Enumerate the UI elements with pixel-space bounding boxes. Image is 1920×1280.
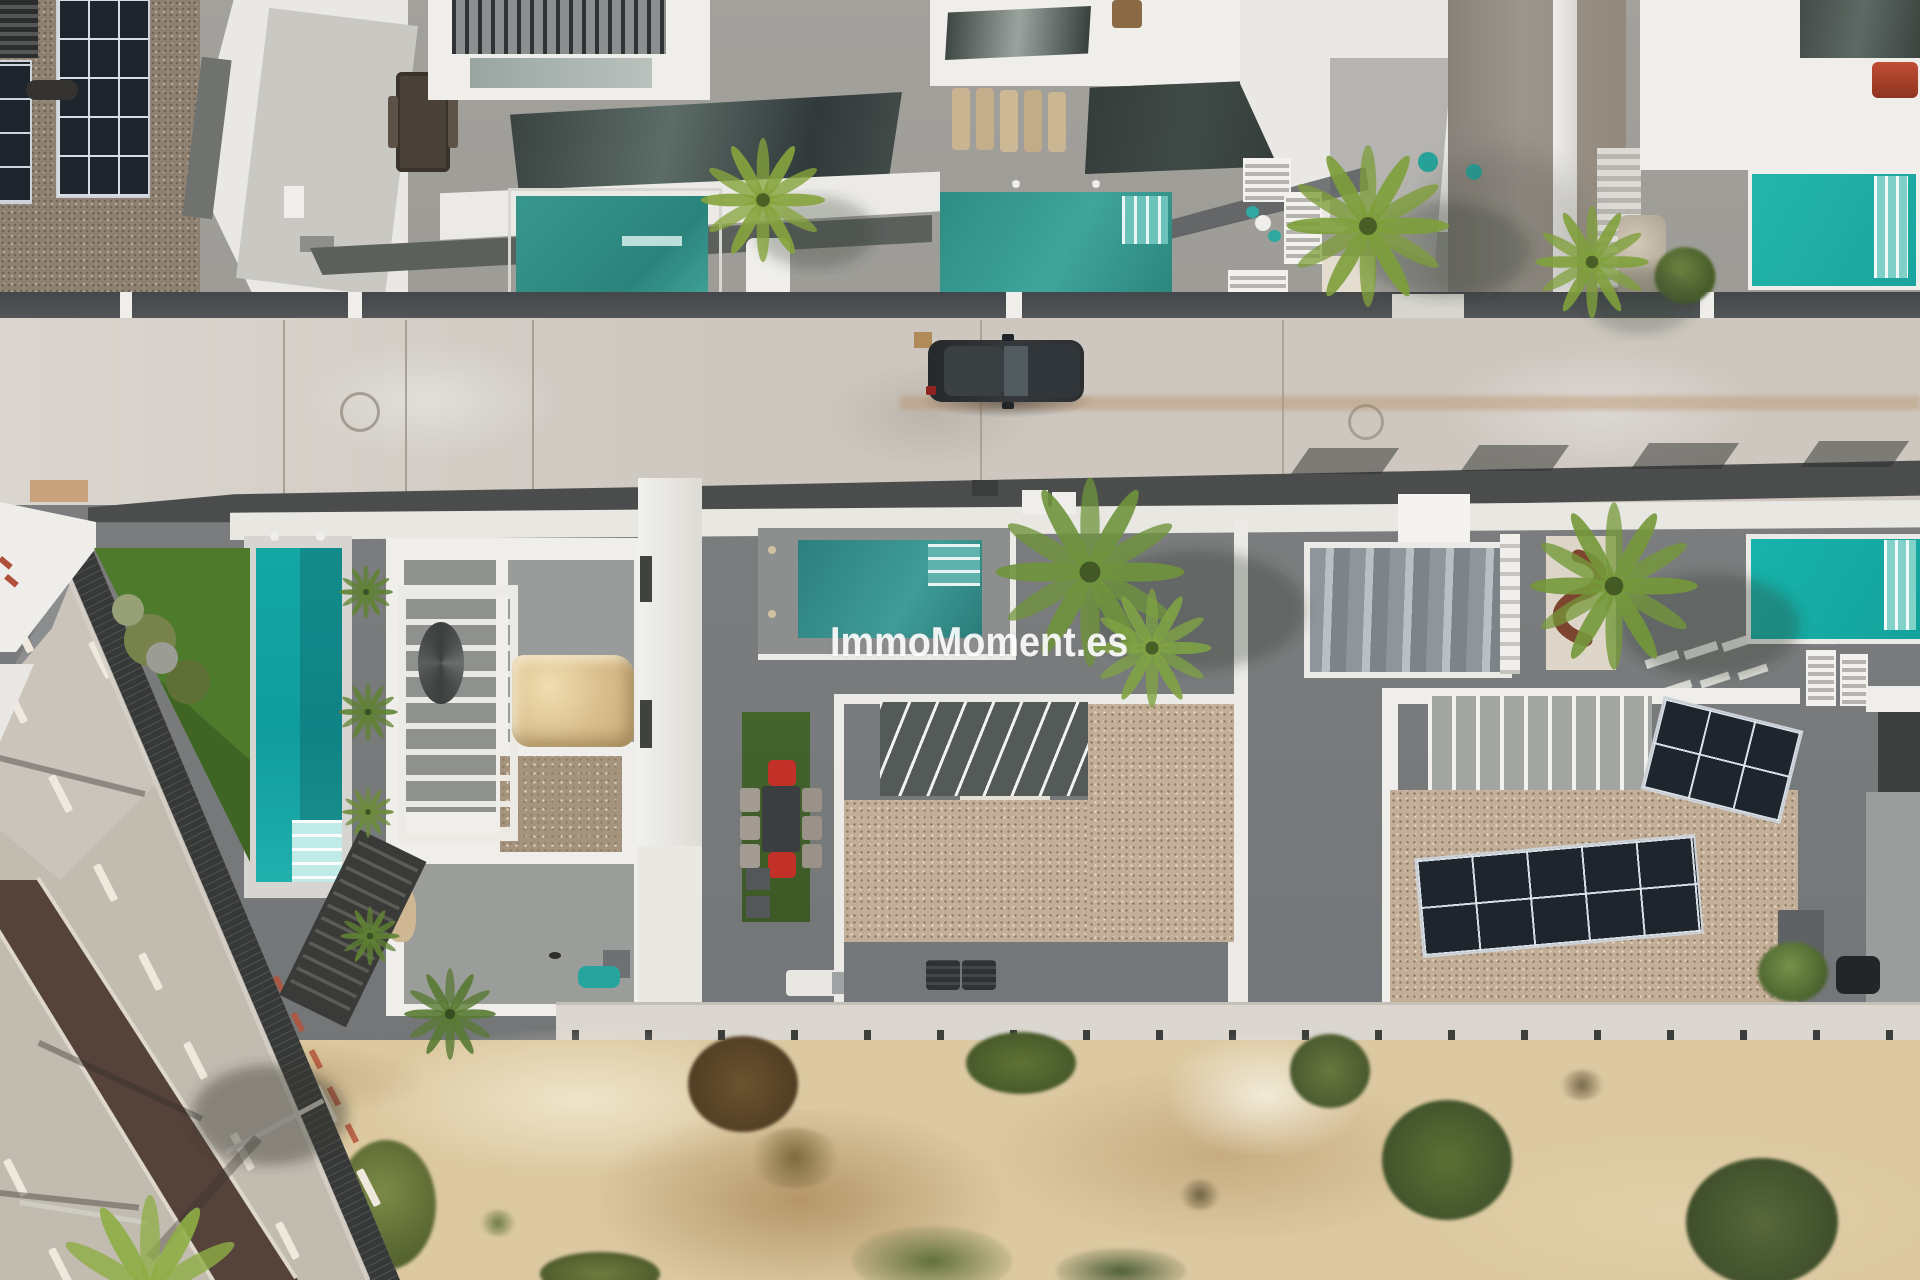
aerial-photo: ImmoMoment.es: [0, 0, 1920, 1280]
garden-rock: [146, 642, 178, 674]
palm-tuft-icon: [339, 565, 393, 619]
palm-tuft-icon: [342, 786, 394, 838]
watermark-text: ImmoMoment.es: [830, 618, 1128, 666]
walkway-plant-icon: [404, 968, 496, 1060]
garden-bush-grey: [112, 594, 144, 626]
palm-shadow-on-road: [192, 1065, 348, 1165]
palm-tuft-icon: [338, 682, 397, 741]
